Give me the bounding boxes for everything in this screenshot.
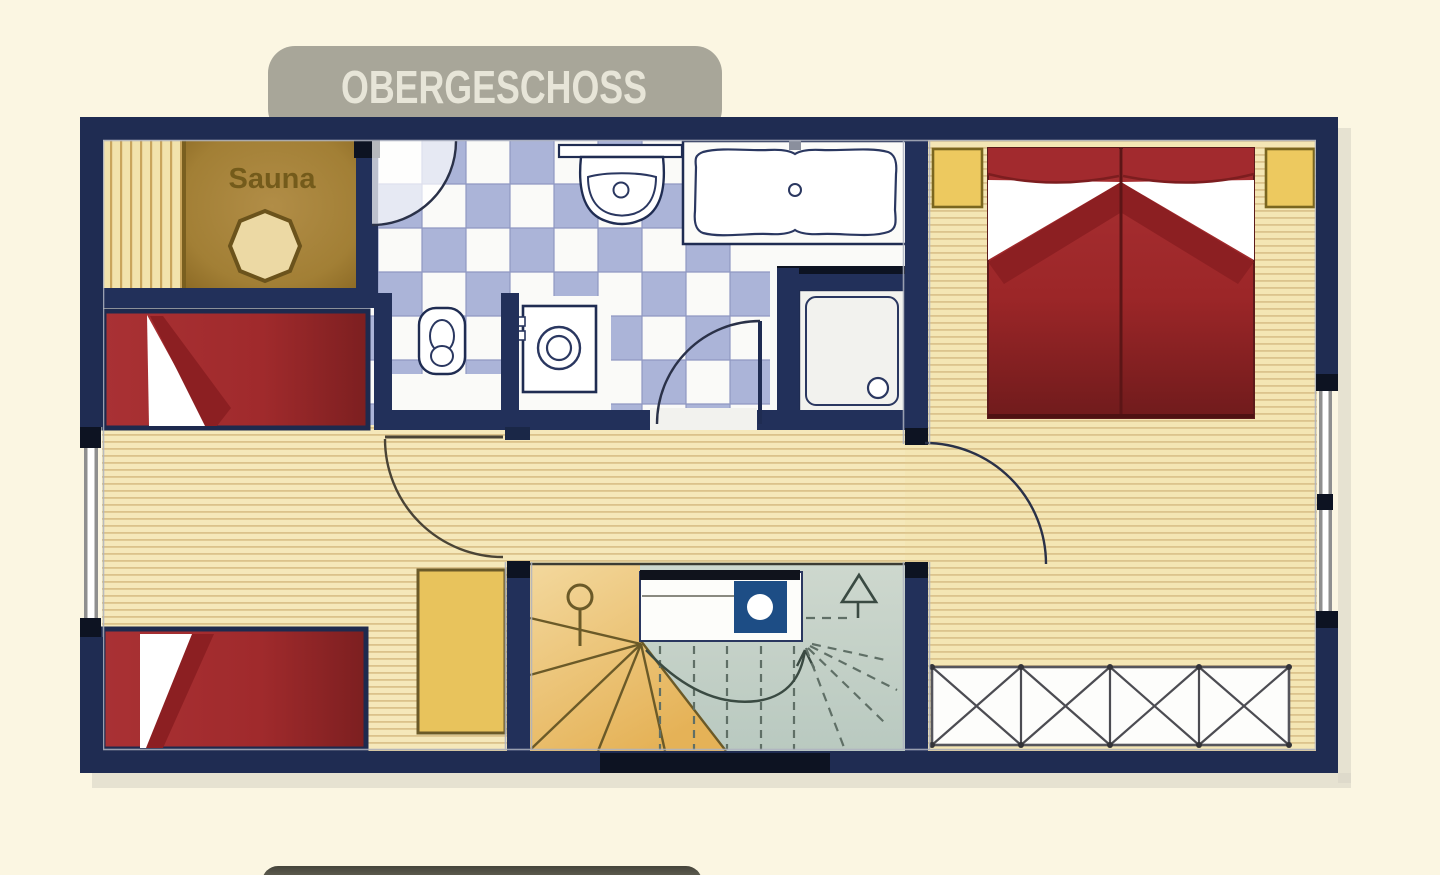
- svg-text:Sauna: Sauna: [228, 163, 316, 195]
- svg-text:OBERGESCHOSS: OBERGESCHOSS: [341, 61, 647, 113]
